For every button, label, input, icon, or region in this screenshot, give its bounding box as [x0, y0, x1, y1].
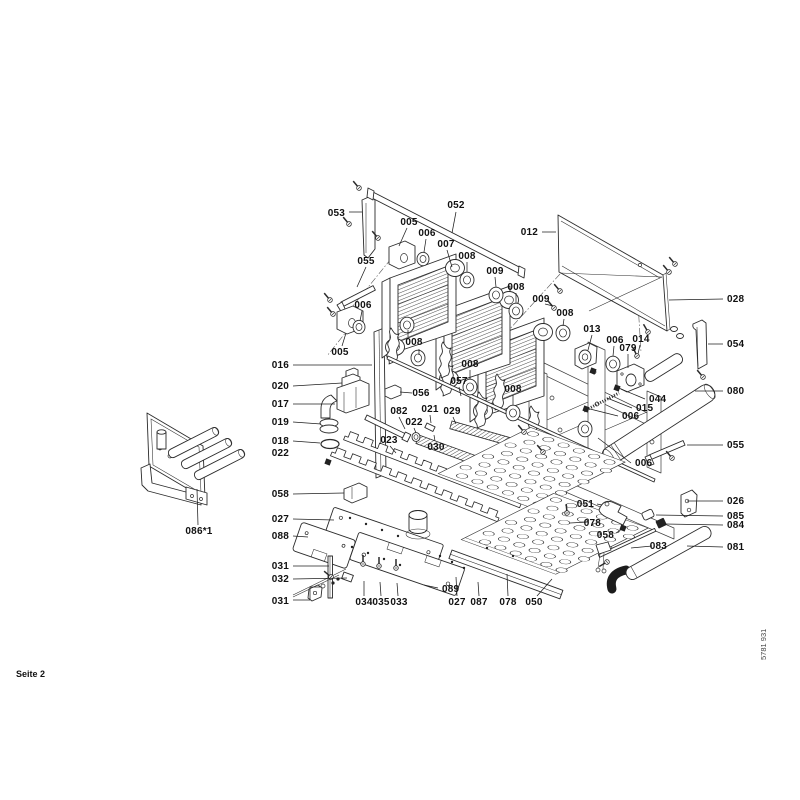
- leader-line: [397, 583, 398, 596]
- panel-washers: [671, 327, 684, 339]
- leader-line: [452, 212, 456, 233]
- part-label-006: 006: [635, 458, 653, 469]
- part-label-027: 027: [448, 597, 466, 608]
- leader-line: [293, 441, 320, 443]
- injector-021: [425, 423, 435, 431]
- part-label-012: 012: [521, 227, 539, 238]
- part-label-051: 051: [577, 499, 595, 510]
- leader-line: [424, 239, 426, 252]
- part-label-052: 052: [447, 200, 465, 211]
- leader-line: [478, 582, 479, 596]
- page-number: Seite 2: [16, 669, 45, 679]
- part-label-006: 006: [622, 411, 640, 422]
- flange-079: [617, 364, 644, 392]
- part-label-033: 033: [390, 597, 408, 608]
- bracket-026: [681, 490, 697, 517]
- screw: [598, 559, 610, 569]
- panel-screw-dot: [351, 546, 353, 548]
- part-label-021: 021: [421, 404, 439, 415]
- part-label-027: 027: [272, 514, 290, 525]
- bracket-054: [693, 320, 707, 369]
- panel-screw-dot: [381, 529, 383, 531]
- o-ring-gasket: [411, 350, 425, 366]
- panel-screw-dot: [399, 564, 401, 566]
- part-label-078: 078: [584, 518, 602, 529]
- part-label-079: 079: [619, 343, 637, 354]
- screw: [325, 306, 336, 318]
- part-label-008: 008: [504, 384, 522, 395]
- part-label-022: 022: [272, 448, 290, 459]
- screw: [661, 264, 672, 276]
- screw: [695, 369, 706, 381]
- o-ring-gasket: [509, 303, 523, 319]
- panel-screw-dot: [512, 555, 514, 557]
- o-ring-gasket: [556, 325, 570, 341]
- part-label-055: 055: [357, 256, 375, 267]
- leader-line: [293, 493, 344, 494]
- hex-nut: [324, 458, 331, 465]
- part-label-008: 008: [507, 282, 525, 293]
- o-ring-gasket: [606, 356, 620, 372]
- screw: [351, 180, 362, 192]
- document-number: 5781 931: [759, 629, 768, 660]
- bracket-053: [362, 196, 375, 258]
- part-label-058: 058: [597, 530, 615, 541]
- part-label-078: 078: [499, 597, 517, 608]
- part-label-008: 008: [556, 308, 574, 319]
- o-ring-gasket: [417, 252, 429, 265]
- leader-line: [656, 515, 723, 516]
- part-label-005: 005: [400, 217, 418, 228]
- part-label-056: 056: [412, 388, 430, 399]
- part-label-083: 083: [650, 541, 668, 552]
- part-label-055: 055: [727, 440, 745, 451]
- panel-screw-dot: [367, 552, 369, 554]
- o-ring-gasket: [578, 421, 592, 437]
- leader-line: [495, 277, 496, 287]
- fitting-032: [342, 572, 354, 582]
- part-label-031: 031: [272, 596, 290, 607]
- part-label-009: 009: [486, 266, 504, 277]
- part-label-026: 026: [727, 496, 745, 507]
- part-label-034: 034: [355, 597, 373, 608]
- part-label-030: 030: [427, 442, 445, 453]
- bracket-058-left: [344, 483, 367, 503]
- screw: [322, 292, 333, 304]
- part-label-053: 053: [328, 208, 346, 219]
- part-label-029: 029: [443, 406, 461, 417]
- leader-line: [380, 582, 381, 596]
- pipe-stub-079: [643, 352, 684, 384]
- part-label-017: 017: [272, 399, 290, 410]
- panel-screw-dot: [365, 523, 367, 525]
- leader-line: [638, 345, 640, 354]
- panel-screw-dot: [439, 555, 441, 557]
- burner-assembly-086: [141, 413, 246, 505]
- part-label-050: 050: [525, 597, 543, 608]
- front-panel-012: [558, 215, 670, 331]
- part-label-080: 080: [727, 386, 745, 397]
- panel-screw-dot: [383, 558, 385, 560]
- part-label-006: 006: [354, 300, 372, 311]
- part-label-032: 032: [272, 574, 290, 585]
- o-ring-gasket: [506, 405, 520, 421]
- part-label-028: 028: [727, 294, 745, 305]
- part-label-008: 008: [461, 359, 479, 370]
- panel-screw-dot: [463, 567, 465, 569]
- part-label-089: 089: [442, 584, 460, 595]
- part-label-086-1: 086*1: [185, 526, 212, 537]
- leader-line: [621, 389, 645, 399]
- panel-screw-dot: [451, 561, 453, 563]
- panel-screw-dot: [486, 547, 488, 549]
- part-label-019: 019: [272, 417, 290, 428]
- part-label-035: 035: [372, 597, 390, 608]
- o-ring-gasket: [412, 433, 420, 442]
- leader-line: [293, 519, 334, 520]
- part-label-084: 084: [727, 520, 745, 531]
- part-label-087: 087: [470, 597, 488, 608]
- leader-line: [430, 415, 431, 423]
- leader-line: [357, 267, 366, 287]
- part-label-020: 020: [272, 381, 290, 392]
- part-label-013: 013: [583, 324, 601, 335]
- o-ring-gasket: [460, 272, 474, 288]
- leader-line: [669, 299, 723, 300]
- part-label-009: 009: [532, 294, 550, 305]
- leader-line: [293, 383, 342, 386]
- part-label-088: 088: [272, 531, 290, 542]
- part-label-018: 018: [272, 436, 290, 447]
- leader-line: [293, 422, 321, 424]
- part-label-082: 082: [390, 406, 408, 417]
- part-label-058: 058: [272, 489, 290, 500]
- leader-line: [399, 417, 405, 429]
- o-ring-gasket: [489, 287, 503, 303]
- leader-line: [613, 346, 614, 356]
- part-labels: 0530520050060070080090120080090080280540…: [185, 200, 744, 608]
- part-label-008: 008: [405, 337, 423, 348]
- part-label-023: 023: [380, 435, 398, 446]
- screw: [552, 283, 563, 295]
- part-label-081: 081: [727, 542, 745, 553]
- part-label-057: 057: [450, 376, 468, 387]
- part-label-007: 007: [437, 239, 455, 250]
- o-ring-gasket: [400, 317, 414, 333]
- screw: [667, 256, 678, 268]
- exploded-parts-diagram: 0530520050060070080090120080090080280540…: [0, 0, 800, 800]
- o-ring-gasket: [353, 320, 365, 333]
- part-label-008: 008: [458, 251, 476, 262]
- part-label-006: 006: [418, 228, 436, 239]
- part-label-054: 054: [727, 339, 745, 350]
- part-label-022: 022: [405, 417, 423, 428]
- part-label-031: 031: [272, 561, 290, 572]
- bracket-056: [385, 385, 401, 399]
- part-label-016: 016: [272, 360, 290, 371]
- sensor-block-005-top: [389, 241, 415, 269]
- panel-screw-dot: [397, 535, 399, 537]
- leader-line: [400, 392, 412, 393]
- panel-screw-dot: [349, 517, 351, 519]
- part-label-005: 005: [331, 347, 349, 358]
- leader-line: [665, 524, 723, 525]
